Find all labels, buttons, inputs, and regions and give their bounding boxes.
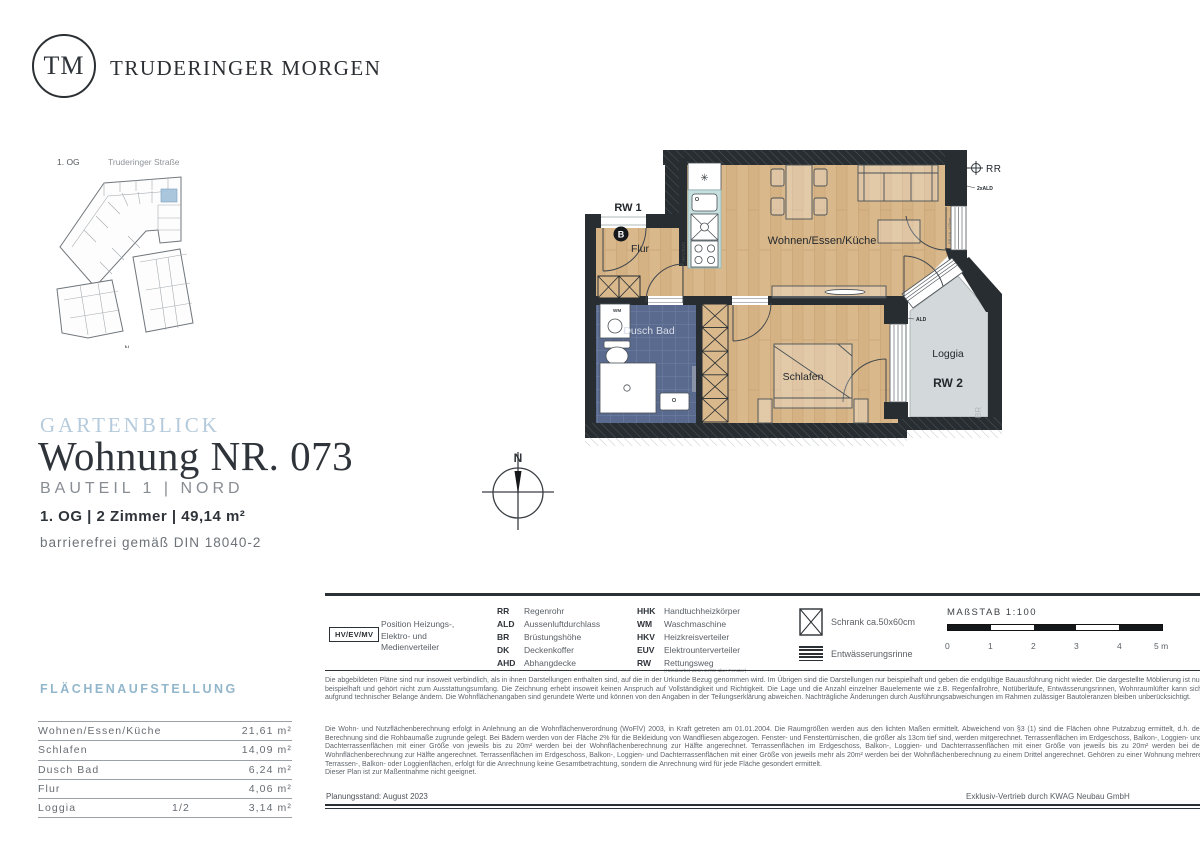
room-name: Dusch Bad — [38, 764, 172, 776]
scale-ticks: 0 1 2 3 4 5 m — [947, 641, 1172, 653]
table-row: Flur 4,06 m² — [38, 780, 292, 799]
floor-plan: ✳ HKV/EUV — [580, 140, 1015, 446]
room-area: 6,24 m² — [220, 764, 292, 776]
compass-needle — [515, 471, 522, 494]
scale-tick: 1 — [988, 641, 993, 651]
nightstand-right — [854, 399, 868, 423]
disclaimer-paragraph-1: Die abgebildeten Pläne sind nur insoweit… — [325, 677, 1200, 703]
floorplan-document-page: TM TRUDERINGER MORGEN 1. OG Truderinger … — [0, 0, 1200, 849]
site-plan-highlighted-unit — [161, 189, 177, 202]
room-factor: 1/2 — [172, 802, 220, 814]
room-area: 14,09 m² — [220, 744, 292, 756]
legend-abbr: WM — [637, 619, 664, 629]
rr-label: RR — [986, 164, 1001, 175]
legend-term: Abhangdecke — [524, 658, 576, 668]
legend-term: Heizkreisverteiler — [664, 632, 729, 642]
disclaimer-paragraph-3: Dieser Plan ist zur Maßentnahme nicht ge… — [325, 769, 1200, 778]
room-name: Wohnen/Essen/Küche — [38, 725, 172, 737]
compass-rose: N — [478, 446, 558, 534]
legend-abbr: HHK — [637, 606, 664, 616]
br-height-label: BR o.k. +75cm — [947, 217, 952, 244]
legend-bottom-rule — [325, 670, 1200, 671]
dining-table — [786, 165, 812, 219]
area-table: Wohnen/Essen/Küche 21,61 m² Schlafen 14,… — [38, 721, 292, 818]
compass-north-label: N — [514, 451, 523, 465]
legend-abbr: RW — [637, 658, 664, 668]
table-row: Schlafen 14,09 m² — [38, 741, 292, 760]
shower — [600, 363, 656, 413]
legend-abbr: ALD — [497, 619, 524, 629]
legend-abbr: AHD — [497, 658, 524, 668]
site-plan-street-label: Truderinger Straße — [108, 157, 180, 167]
drainage-channel-icon — [799, 646, 823, 663]
loggia-label: Loggia — [932, 348, 964, 360]
room-area: 4,06 m² — [220, 783, 292, 795]
legend-abbr: HKV — [637, 632, 664, 642]
scale-bar — [947, 624, 1163, 631]
nightstand-left — [758, 399, 772, 423]
sofa — [858, 165, 938, 201]
legend-abbr: BR — [497, 632, 524, 642]
scale-tick: 0 — [945, 641, 950, 651]
scale-title: MAßSTAB 1:100 — [947, 607, 1037, 618]
scale-tick: 2 — [1031, 641, 1036, 651]
exterior-hatch — [585, 438, 907, 446]
room-area: 3,14 m² — [220, 802, 292, 814]
ald2x-label: 2xALD — [977, 186, 993, 192]
legend-abbr: DK — [497, 645, 524, 655]
legend-term: Rettungsweg — [664, 658, 714, 668]
legend-term: Aussenluftdurchlass — [524, 619, 600, 629]
table-row: Wohnen/Essen/Küche 21,61 m² — [38, 722, 292, 741]
barrier-free-badge-label: B — [618, 230, 625, 240]
ald-label: ALD — [916, 317, 927, 323]
drainage-channel-label: Entwässerungsrinne — [831, 649, 913, 659]
legend-term: Elektrounterverteiler — [664, 645, 740, 655]
schrank-icon — [799, 608, 823, 636]
room-name: Loggia — [38, 802, 172, 814]
rw2-label: RW 2 — [933, 376, 963, 390]
unit-specs: 1. OG | 2 Zimmer | 49,14 m² — [40, 508, 245, 525]
schrank-label: Schrank ca.50x60cm — [831, 617, 915, 627]
room-name: Schlafen — [38, 744, 172, 756]
site-plan: 1. OG Truderinger Straße N — [40, 148, 290, 348]
schlafen-label: Schlafen — [783, 371, 824, 383]
brand-logo: TM — [32, 34, 96, 98]
freezer-snowflake-icon: ✳ — [700, 173, 708, 184]
table-row: Loggia 1/2 3,14 m² — [38, 799, 292, 818]
brand-logo-initials: TM — [44, 51, 85, 81]
room-area: 21,61 m² — [220, 725, 292, 737]
legend-term: Waschmaschine — [664, 619, 726, 629]
site-plan-floor-label: 1. OG — [57, 157, 80, 167]
table-row: Dusch Bad 6,24 m² — [38, 761, 292, 780]
rw1-label: RW 1 — [614, 202, 641, 214]
scale-tick: 5 m — [1154, 641, 1168, 651]
scale-tick: 4 — [1117, 641, 1122, 651]
hkv-euv-label: HKV/EUV — [681, 241, 686, 262]
legend-column-2: HHKHandtuchheizkörper WMWaschmaschine HK… — [637, 606, 746, 674]
hv-ev-mv-description: Position Heizungs-, Elektro- und Medienv… — [381, 619, 454, 654]
legend-term: Handtuchheizkörper — [664, 606, 740, 616]
legend-abbr: EUV — [637, 645, 664, 655]
legend-column-1: RRRegenrohr ALDAussenluftdurchlass BRBrü… — [497, 606, 600, 671]
legend-term: Deckenkoffer — [524, 645, 574, 655]
flur-label: Flur — [631, 243, 650, 255]
br-loggia-label: BR — [974, 407, 983, 418]
planning-status: Planungsstand: August 2023 — [326, 792, 428, 801]
room-name: Flur — [38, 783, 172, 795]
site-compass-north-label: N — [125, 345, 130, 348]
wm-label: WM — [613, 308, 621, 313]
footer-rule — [325, 804, 1200, 809]
rr-symbol — [967, 161, 983, 175]
side-table — [878, 220, 920, 243]
wohnen-label: Wohnen/Essen/Küche — [768, 235, 877, 247]
area-table-heading: FLÄCHENAUFSTELLUNG — [40, 682, 238, 696]
disclaimer-paragraph-2: Die Wohn- und Nutzflächenberechnung erfo… — [325, 726, 1200, 770]
scale-tick: 3 — [1074, 641, 1079, 651]
towel-radiator — [692, 366, 696, 392]
legend-top-rule — [325, 593, 1200, 596]
distribution-note: Exklusiv-Vertrieb durch KWAG Neubau GmbH — [966, 792, 1130, 801]
accessibility-note: barrierefrei gemäß DIN 18040-2 — [40, 535, 261, 550]
site-plan-compass: N — [103, 345, 151, 348]
duschbad-label: Dusch Bad — [623, 325, 675, 337]
ald2x-leader — [967, 186, 975, 188]
building-section: BAUTEIL 1 | NORD — [40, 480, 244, 498]
legend-term: Regenrohr — [524, 606, 564, 616]
legend-term: Brüstungshöhe — [524, 632, 581, 642]
hv-ev-mv-box: HV/EV/MV — [329, 627, 379, 642]
page-title: Wohnung NR. 073 — [38, 432, 353, 480]
toilet-bowl — [606, 347, 628, 365]
legend-abbr: RR — [497, 606, 524, 616]
brand-name: TRUDERINGER MORGEN — [110, 56, 381, 81]
exterior-hatch-2 — [898, 430, 1002, 438]
